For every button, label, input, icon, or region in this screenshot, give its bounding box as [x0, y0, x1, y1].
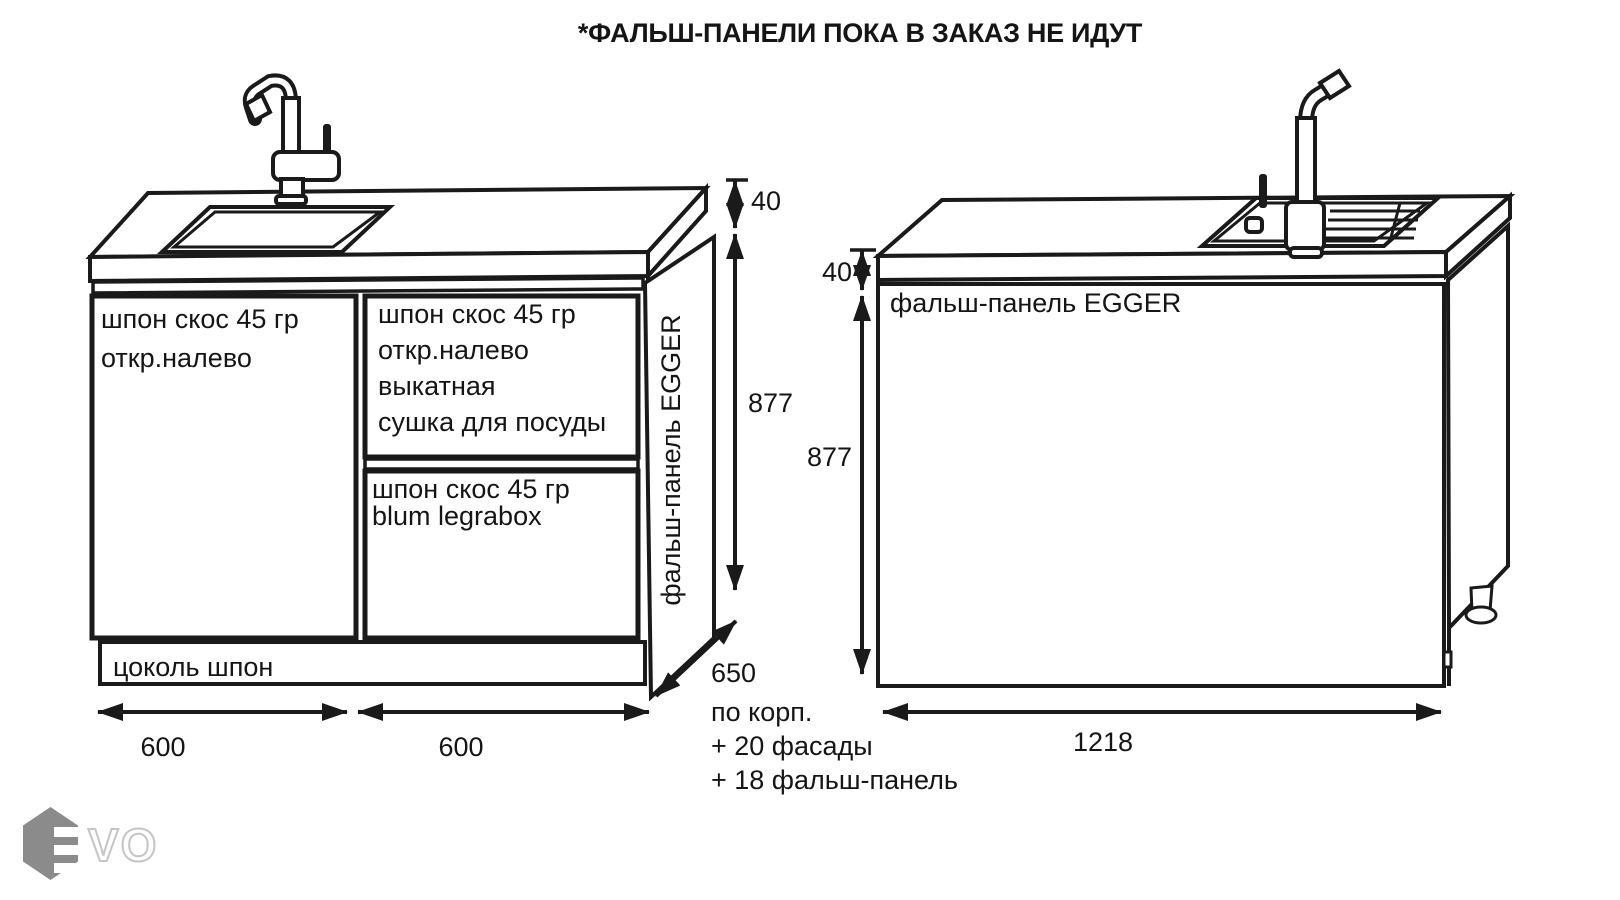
depth-note-2: + 20 фасады: [711, 731, 873, 761]
left-door-label-1: шпон скос 45 гр: [101, 304, 299, 334]
door-drawer-gap-strip: [365, 459, 638, 469]
drawing-page: *ФАЛЬШ-ПАНЕЛИ ПОКА В ЗАКАЗ НЕ ИДУТ шпо: [0, 0, 1620, 900]
left-side-panel-label: фальш-панель EGGER: [656, 314, 686, 605]
right-front-fake-panel: [878, 284, 1444, 686]
evo-logo: VO: [23, 807, 158, 880]
right-door-label-3: выкатная: [378, 371, 496, 401]
left-faucet-body: [273, 152, 339, 180]
kitchen-cabinet-drawing: *ФАЛЬШ-ПАНЕЛИ ПОКА В ЗАКАЗ НЕ ИДУТ шпо: [0, 0, 1620, 900]
right-countertop-front-edge: [878, 252, 1446, 280]
left-dim-40-label: 40: [751, 186, 781, 216]
left-faucet-base: [276, 196, 306, 204]
right-faucet-riser: [1297, 118, 1315, 206]
left-dim-650-label: 650: [711, 658, 756, 688]
right-faucet-connector: [1246, 218, 1262, 232]
right-faucet-base: [1290, 248, 1322, 257]
left-dim-600a-label: 600: [140, 732, 185, 762]
right-door-label-4: сушка для посуды: [378, 407, 606, 437]
right-dim-877-label: 877: [807, 442, 852, 472]
logo-letters: VO: [88, 819, 158, 871]
logo-e-bars: [54, 827, 86, 873]
left-dim-600b-label: 600: [438, 732, 483, 762]
left-dim-877-label: 877: [748, 388, 793, 418]
foot-tab: [1444, 652, 1451, 667]
right-dim-40-label: 40: [822, 257, 852, 287]
right-faucet-handle: [1259, 174, 1267, 208]
right-front-panel-label: фальш-панель EGGER: [890, 288, 1181, 318]
left-door-label-2: откр.налево: [101, 343, 252, 373]
adjustable-foot-base: [1466, 607, 1496, 623]
page-title: *ФАЛЬШ-ПАНЕЛИ ПОКА В ЗАКАЗ НЕ ИДУТ: [578, 18, 1143, 48]
right-cabinet: фальш-панель EGGER: [878, 71, 1510, 686]
right-door-label-2: откр.налево: [378, 335, 529, 365]
right-faucet-body: [1286, 202, 1324, 250]
depth-note-3: + 18 фальш-панель: [711, 765, 958, 795]
right-door-label-1: шпон скос 45 гр: [378, 299, 576, 329]
left-cabinet: шпон скос 45 гр откр.налево шпон скос 45…: [90, 80, 714, 697]
plinth-label: цоколь шпон: [113, 652, 273, 682]
left-countertop-front-edge: [90, 252, 648, 281]
left-faucet: [246, 80, 339, 204]
depth-note-1: по корп.: [711, 697, 812, 727]
drawer-label-2: blum legrabox: [372, 501, 542, 531]
drawer-label-1: шпон скос 45 гр: [372, 474, 570, 504]
left-top-rail: [93, 278, 643, 293]
left-faucet-riser: [283, 98, 299, 158]
right-dim-1218-label: 1218: [1073, 727, 1133, 757]
right-side-panel: [1448, 226, 1508, 628]
